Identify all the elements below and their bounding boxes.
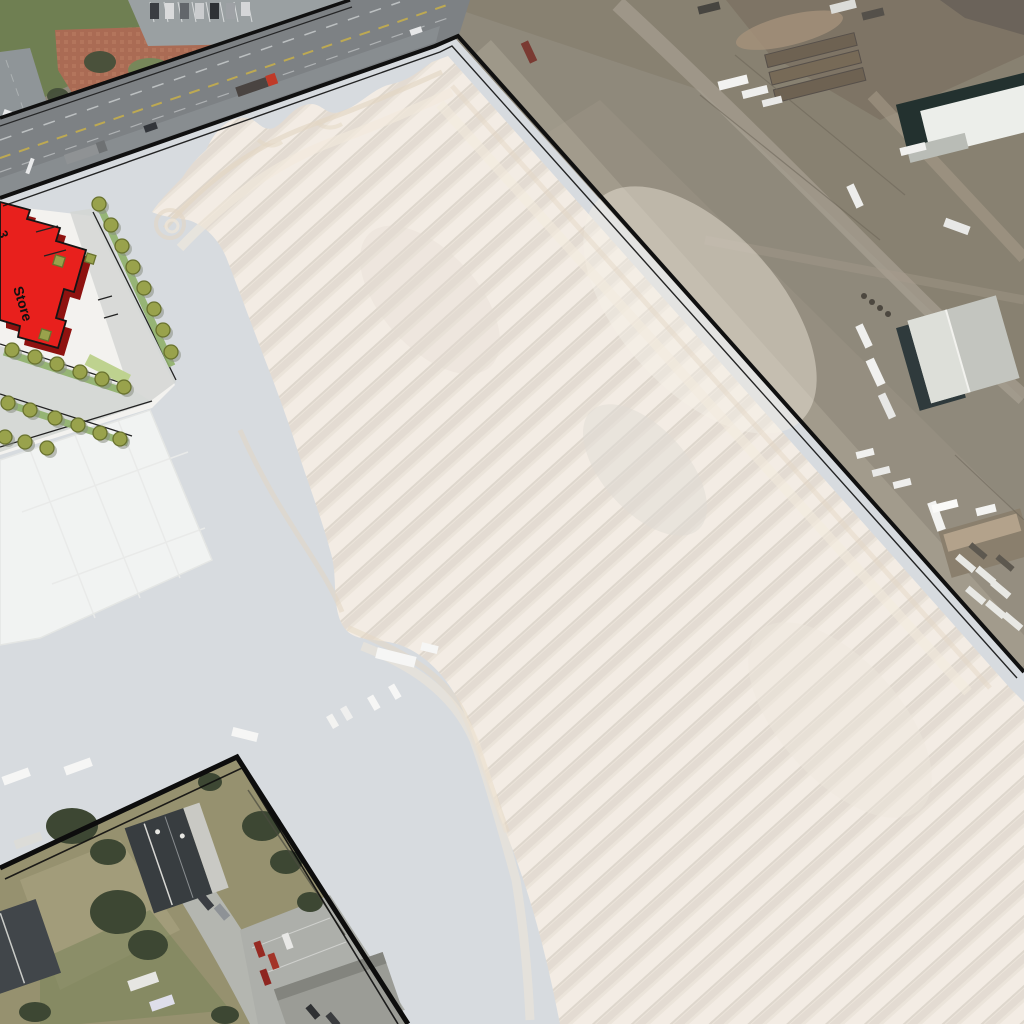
- aerial-map: Store 3: [0, 0, 1024, 1024]
- map-canvas[interactable]: Store 3: [0, 0, 1024, 1024]
